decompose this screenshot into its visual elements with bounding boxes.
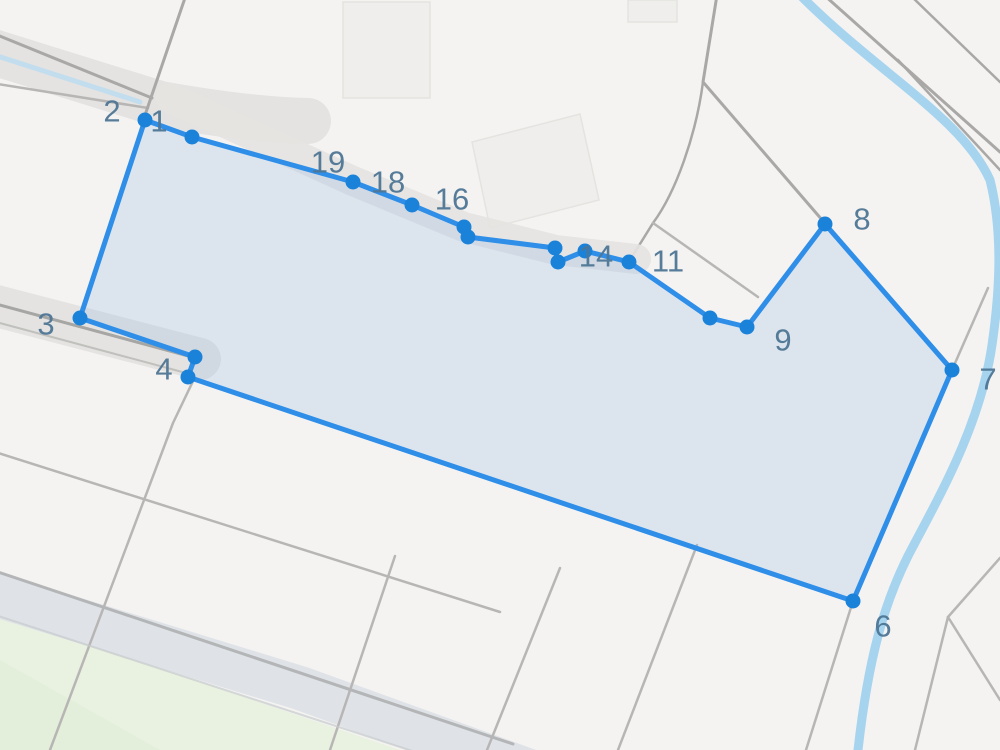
vertex-label-2: 2 — [103, 94, 120, 129]
map-stage: 123467891114161819 — [0, 0, 1000, 750]
vertex-label-3: 3 — [37, 307, 54, 342]
vertex-dot-hidden-4[interactable] — [181, 370, 196, 385]
vertex-label-19: 19 — [311, 145, 345, 180]
vertex-dot-hidden-9[interactable] — [703, 311, 718, 326]
vertex-dot-16[interactable] — [457, 220, 472, 235]
vertex-label-16: 16 — [435, 182, 469, 217]
vertex-label-8: 8 — [853, 202, 870, 237]
vertex-dot-18[interactable] — [405, 198, 420, 213]
vertex-dot-1[interactable] — [185, 130, 200, 145]
vertex-label-9: 9 — [774, 323, 791, 358]
vertex-label-7: 7 — [979, 362, 996, 397]
vertex-dot-8[interactable] — [818, 217, 833, 232]
vertex-dot-9[interactable] — [740, 320, 755, 335]
building — [343, 2, 430, 98]
vertex-dot-hidden-12[interactable] — [551, 255, 566, 270]
vertex-dot-19[interactable] — [346, 175, 361, 190]
vertex-label-14: 14 — [579, 239, 613, 274]
vertex-dot-3[interactable] — [73, 311, 88, 326]
vertex-label-4: 4 — [155, 352, 172, 387]
vertex-label-1: 1 — [150, 104, 167, 139]
vertex-dot-11[interactable] — [622, 255, 637, 270]
vertex-label-18: 18 — [371, 165, 405, 200]
map-canvas[interactable]: 123467891114161819 — [0, 0, 1000, 750]
vertex-dot-6[interactable] — [846, 594, 861, 609]
vertex-label-11: 11 — [652, 244, 684, 279]
vertex-dot-7[interactable] — [945, 363, 960, 378]
building — [628, 0, 677, 22]
vertex-dot-14[interactable] — [548, 241, 563, 256]
vertex-label-6: 6 — [874, 609, 891, 644]
vertex-dot-4[interactable] — [188, 350, 203, 365]
